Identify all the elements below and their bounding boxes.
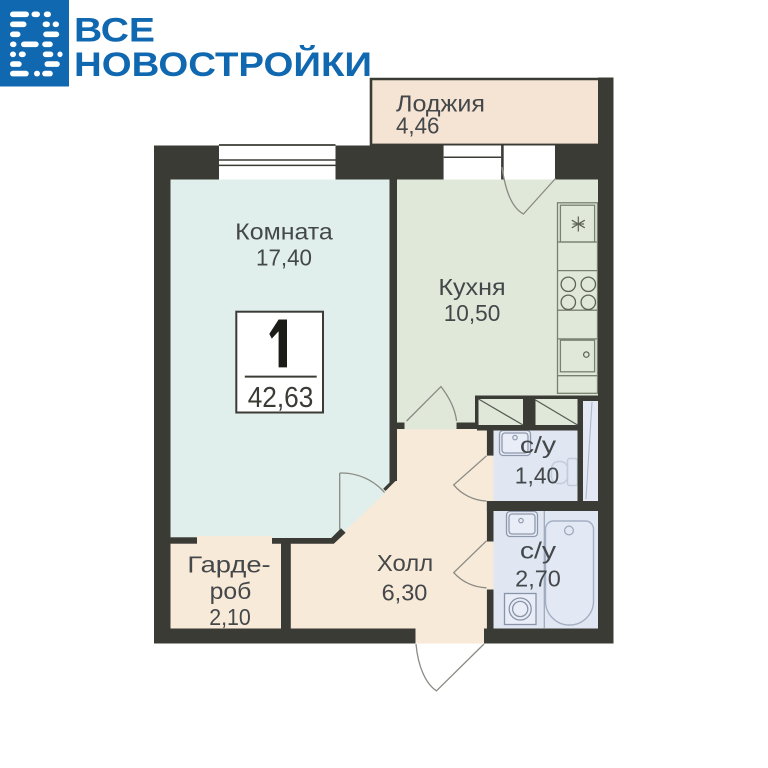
svg-text:Кухня: Кухня — [438, 274, 505, 300]
svg-text:2,10: 2,10 — [209, 604, 251, 630]
svg-text:НОВОСТРОЙКИ: НОВОСТРОЙКИ — [74, 45, 372, 84]
svg-text:с/у: с/у — [520, 432, 557, 458]
svg-text:Комната: Комната — [235, 218, 334, 244]
svg-text:ВСЕ: ВСЕ — [74, 11, 155, 49]
svg-text:2,70: 2,70 — [515, 566, 561, 592]
svg-text:роб: роб — [210, 578, 252, 604]
svg-text:Гарде-: Гарде- — [187, 551, 270, 577]
svg-text:6,30: 6,30 — [382, 579, 428, 605]
svg-text:17,40: 17,40 — [256, 244, 312, 270]
svg-text:42,63: 42,63 — [248, 382, 314, 414]
svg-text:10,50: 10,50 — [444, 300, 501, 326]
svg-text:с/у: с/у — [520, 538, 557, 564]
svg-text:Холл: Холл — [377, 550, 433, 576]
svg-text:4,46: 4,46 — [396, 113, 440, 139]
svg-text:1,40: 1,40 — [515, 462, 560, 488]
